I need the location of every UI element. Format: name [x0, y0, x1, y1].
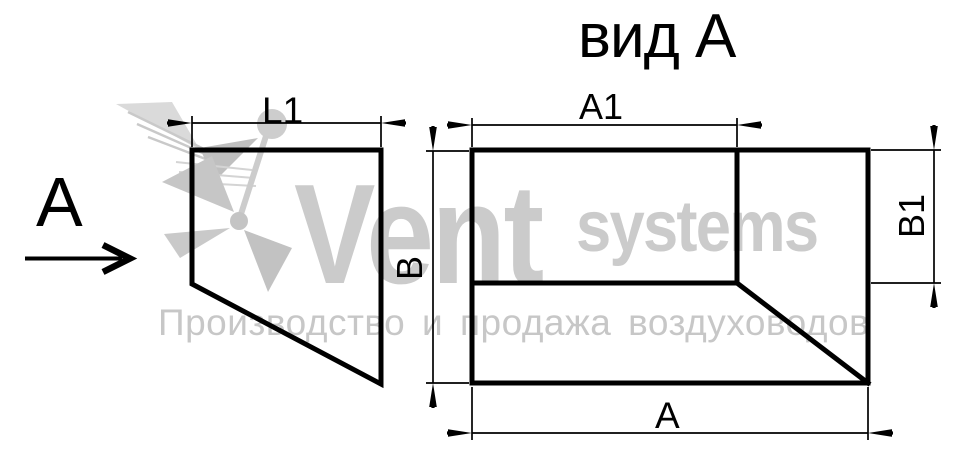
duct-offset-drawing: [0, 0, 957, 450]
view-direction-letter: А: [36, 167, 83, 237]
dimension-label-l1: L1: [262, 92, 303, 129]
dimension-b: [426, 151, 469, 383]
dimension-label-b: В: [392, 256, 428, 280]
dimension-label-a: А: [655, 397, 680, 434]
front-view-outline: [472, 150, 868, 383]
view-title: вид А: [578, 6, 735, 68]
view-direction-arrow: [25, 245, 130, 272]
front-view-diagonal: [737, 283, 868, 383]
side-view-outline: [192, 150, 381, 384]
technical-drawing-canvas: Vent systems Производство и продажа возд…: [0, 0, 957, 450]
dimension-label-a1: A1: [579, 89, 623, 125]
dimension-label-b1: B1: [894, 194, 930, 238]
